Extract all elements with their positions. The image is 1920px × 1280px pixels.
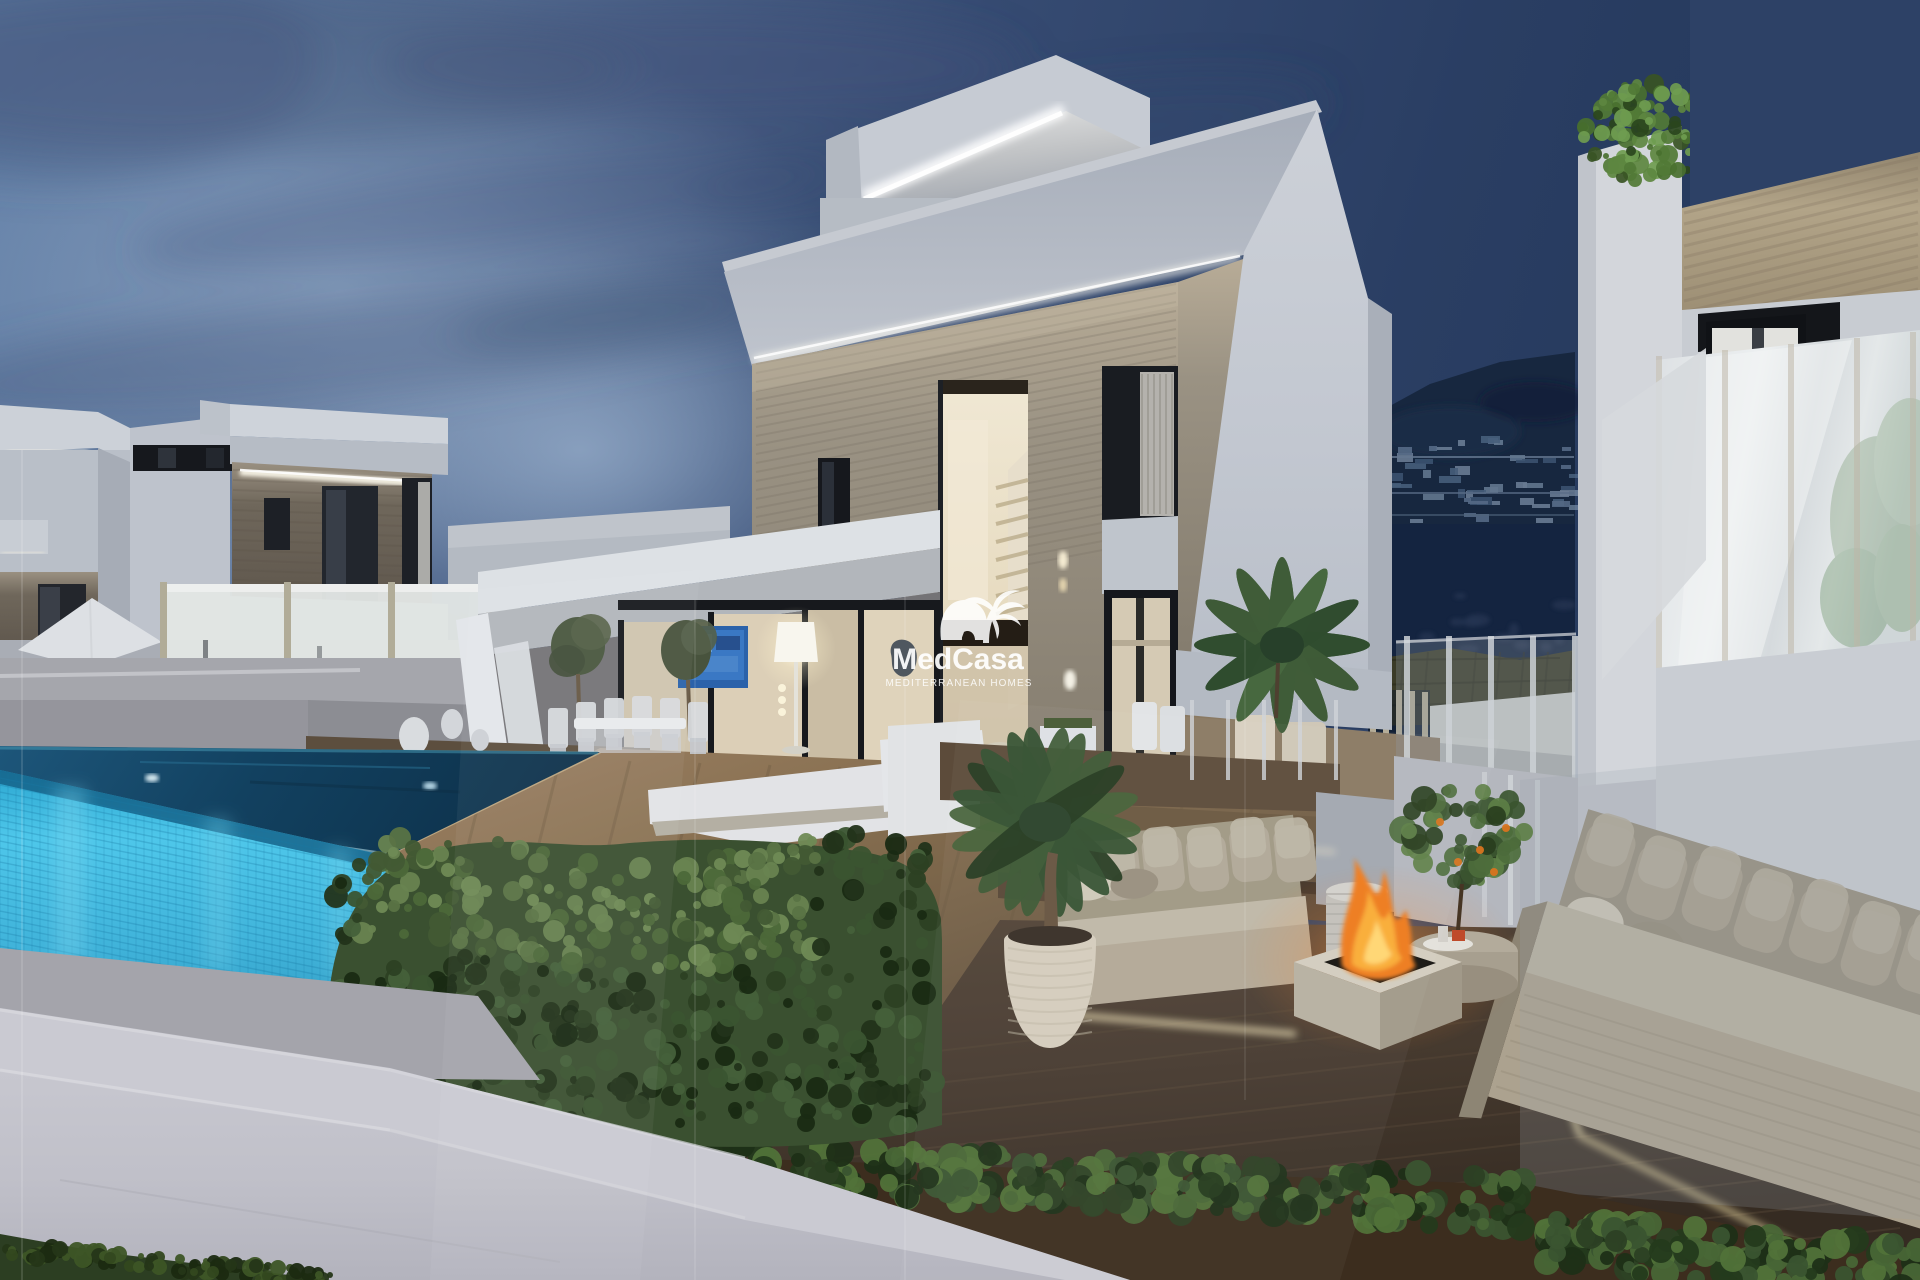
svg-text:MedCasa: MedCasa (892, 643, 1024, 676)
svg-text:MEDITERRANEAN HOMES: MEDITERRANEAN HOMES (885, 678, 1032, 689)
